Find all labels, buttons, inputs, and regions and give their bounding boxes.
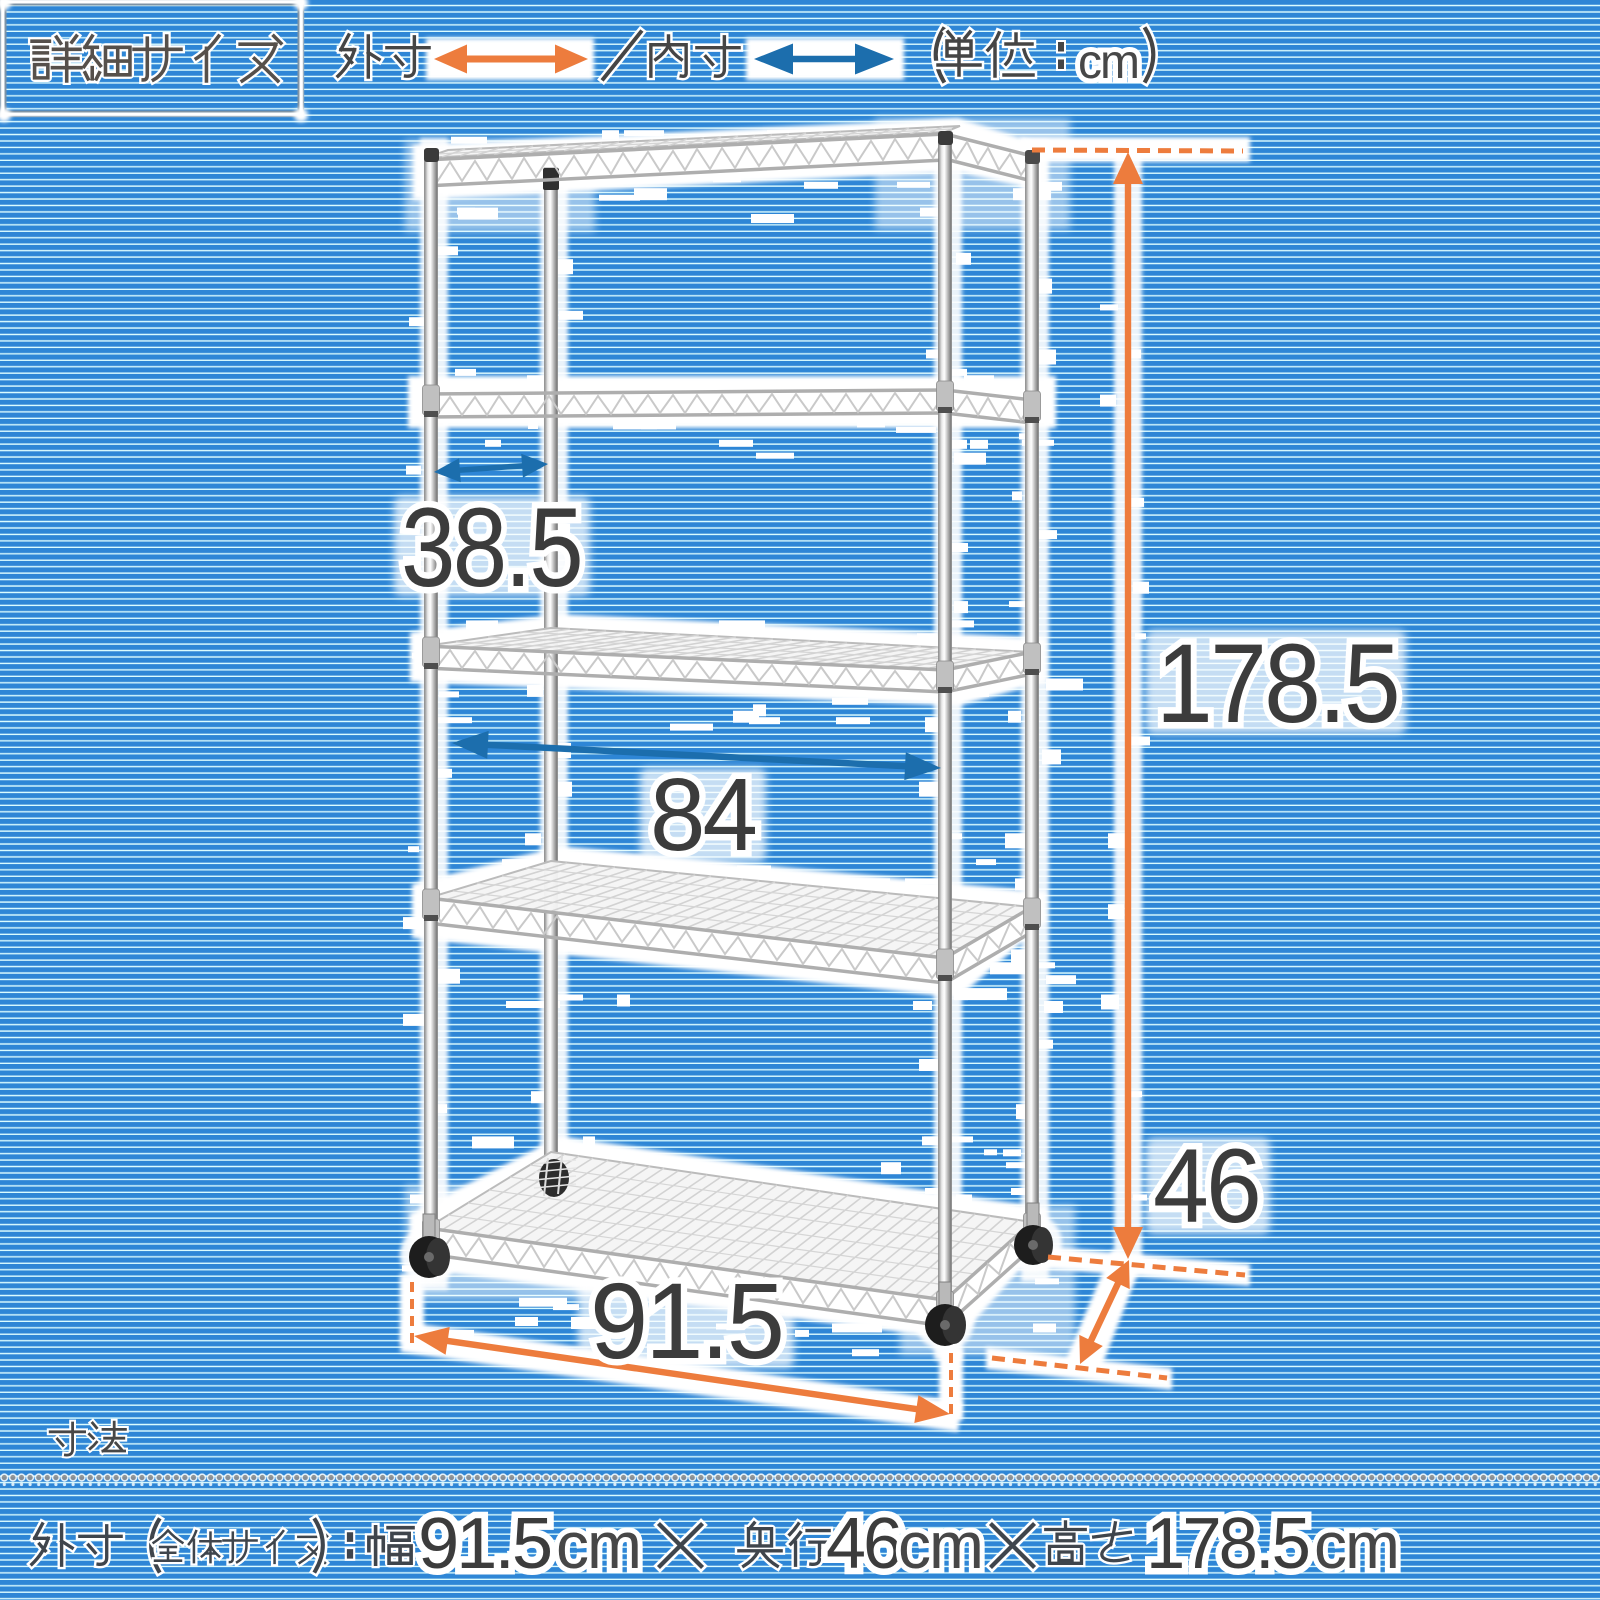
svg-text:46: 46 [826, 1504, 900, 1584]
svg-text:178.5: 178.5 [1156, 621, 1398, 746]
svg-text:46: 46 [1153, 1128, 1259, 1245]
svg-text:cm: cm [1314, 1508, 1398, 1582]
svg-text:38.5: 38.5 [401, 485, 581, 610]
svg-text:84: 84 [650, 757, 756, 872]
svg-text:91.5: 91.5 [418, 1504, 551, 1584]
svg-text:cm: cm [1078, 36, 1138, 89]
svg-text:178.5: 178.5 [1146, 1504, 1309, 1584]
svg-text:cm: cm [898, 1508, 982, 1582]
svg-text:cm: cm [556, 1508, 640, 1582]
svg-text:91.5: 91.5 [590, 1260, 782, 1381]
